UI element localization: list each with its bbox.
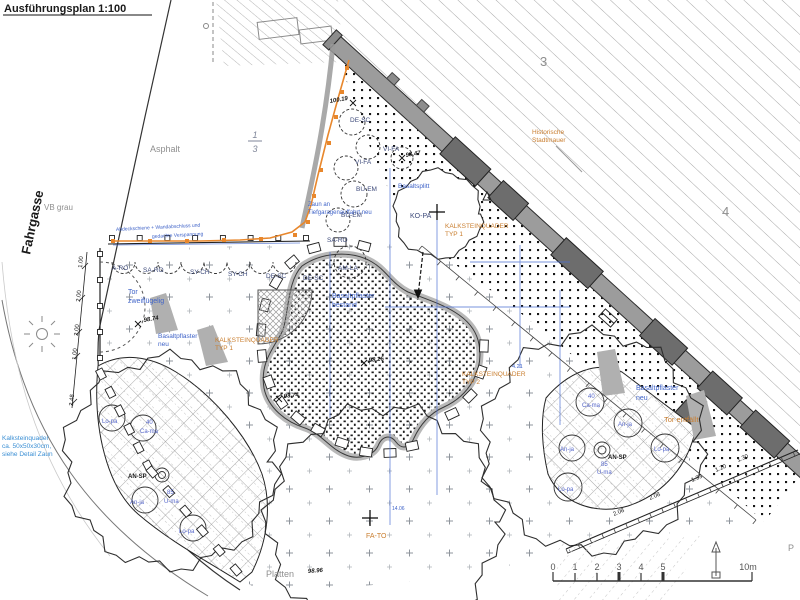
plant-row-6: AM-LA: [338, 265, 359, 272]
plant-curve-0: SA-RO: [327, 237, 348, 244]
bedR-count-40: 40: [588, 394, 595, 400]
kq-typ1-left: KALKSTEINQUADER: [215, 337, 279, 344]
scale-1: 1: [572, 562, 577, 572]
zaun-note-1: Zaun an: [308, 202, 330, 208]
plant-curve-3: VI-FA: [355, 159, 372, 166]
dim-blue-2: 14.06: [392, 506, 405, 512]
bedR-an-ja-1: An-ja: [618, 422, 633, 428]
site-plan-drawing: Ausführungsplan 1:100 Fahrgasse Asphalt …: [0, 0, 800, 600]
basalt-neu-left-1: Basaltpflaster: [158, 333, 198, 340]
dim-left-1: 1.00: [78, 255, 85, 268]
basalt-bestand-2: bestand: [332, 302, 357, 309]
bedR-u-ma: U-ma: [597, 470, 612, 476]
site-plan-page: Ausführungsplan 1:100 Fahrgasse Asphalt …: [0, 0, 800, 600]
tor-entfaellt-label: Tor entfällt: [664, 415, 700, 424]
platten-label: Platten: [266, 569, 294, 579]
elevation-6: 98.96: [308, 568, 324, 575]
plan-title: Ausführungsplan 1:100: [4, 3, 126, 15]
dim-blue-1: 4.21: [512, 364, 523, 370]
kq-typ1-left-2: TYP 1: [215, 345, 233, 352]
bedR-an-ja-2: An-ja: [560, 447, 575, 453]
plant-row-2: SY-CH: [190, 269, 210, 276]
parcel-numerator: 1: [252, 130, 257, 140]
plant-curve-2: BU-EM: [356, 186, 377, 193]
bedL-ca-ma: Ca-ma: [140, 429, 159, 435]
plant-row-0: A-RO: [112, 265, 128, 272]
wall-label-2: Stadtmauer: [532, 137, 566, 144]
bedL-lo-pa-1: Lo-pa: [102, 419, 118, 425]
basalt-neu-right-2: neu: [636, 395, 648, 402]
bedL-an-sp: AN-SP: [128, 474, 147, 480]
basalt-neu-right-1: Basaltpflaster: [636, 385, 679, 392]
basaltsplitt-label: Basaltsplitt: [398, 183, 430, 190]
bedR-lo-pa-2: Lo-pa: [558, 487, 574, 493]
bedL-an-ja: An-ja: [130, 500, 145, 506]
plant-curve-4: VI-FA: [383, 146, 400, 153]
dim-left-3: 2.00: [74, 323, 81, 336]
asphalt-label: Asphalt: [150, 144, 181, 154]
vb-grau-label: VB grau: [44, 203, 73, 212]
wall-label-1: Historische: [532, 129, 565, 136]
plant-curve-1: BU-EM: [341, 212, 362, 219]
p-letter: P: [788, 543, 794, 553]
plant-row-5: DE-SC: [303, 275, 324, 282]
basalt-neu-left-2: neu: [158, 341, 169, 348]
bedR-ca-ma: Ca-ma: [582, 403, 601, 409]
dim-left-5: 2.48: [69, 393, 76, 406]
scale-10m: 10m: [739, 562, 757, 572]
bedR-lo-pa-1: Lo-pa: [654, 447, 670, 453]
kalksteinquader-info-2: ca. 50x50x30cm,: [2, 443, 51, 450]
bedR-an-sp: AN-SP: [608, 455, 627, 461]
plant-row-1: SA-RO: [143, 267, 164, 274]
plant-row-3: SY-CH: [228, 271, 248, 278]
bedR-count-85: 85: [601, 462, 608, 468]
scale-4: 4: [638, 562, 643, 572]
plant-curve-5: DE-SC: [350, 117, 371, 124]
kq-top-2: TYP 1: [445, 231, 463, 238]
kq-typ2-2: TYP 2: [462, 379, 480, 386]
top-structures: [204, 0, 345, 66]
zaun-note-2: Tiefgaragenauffahrt neu: [308, 210, 372, 216]
parcel-denominator: 3: [252, 144, 257, 154]
bedL-u-ma: U-ma: [164, 499, 179, 505]
kq-typ2: KALKSTEINQUADER: [462, 371, 526, 378]
tor-label-1: Tor: [128, 289, 138, 296]
scale-0: 0: [550, 562, 555, 572]
scale-3: 3: [616, 562, 621, 572]
dim-left-4: 1.00: [72, 347, 79, 360]
bedL-count-40: 40: [146, 420, 153, 426]
bedL-lo-pa-2: Lo-pa: [179, 529, 195, 535]
ko-pa-label: KO-PA: [410, 213, 432, 220]
basalt-bestand-1: Basaltpflaster: [332, 293, 375, 300]
dim-left-2: 2.00: [76, 289, 83, 302]
scale-5: 5: [660, 562, 665, 572]
kalksteinquader-info-1: Kalksteinquader: [2, 435, 49, 442]
kalksteinquader-info-3: siehe Detail Zaun: [2, 451, 53, 458]
bedL-count-85: 85: [167, 490, 174, 496]
tor-label-2: zweiflügelig: [128, 298, 164, 305]
plant-row-4: DE-SC: [266, 273, 287, 280]
parcel-4-label: 4: [722, 204, 729, 219]
scale-2: 2: [594, 562, 599, 572]
parcel-3-label: 3: [540, 54, 547, 69]
kq-top: KALKSTEINQUADER: [445, 223, 509, 230]
fa-to-label: FA-TO: [366, 533, 387, 540]
